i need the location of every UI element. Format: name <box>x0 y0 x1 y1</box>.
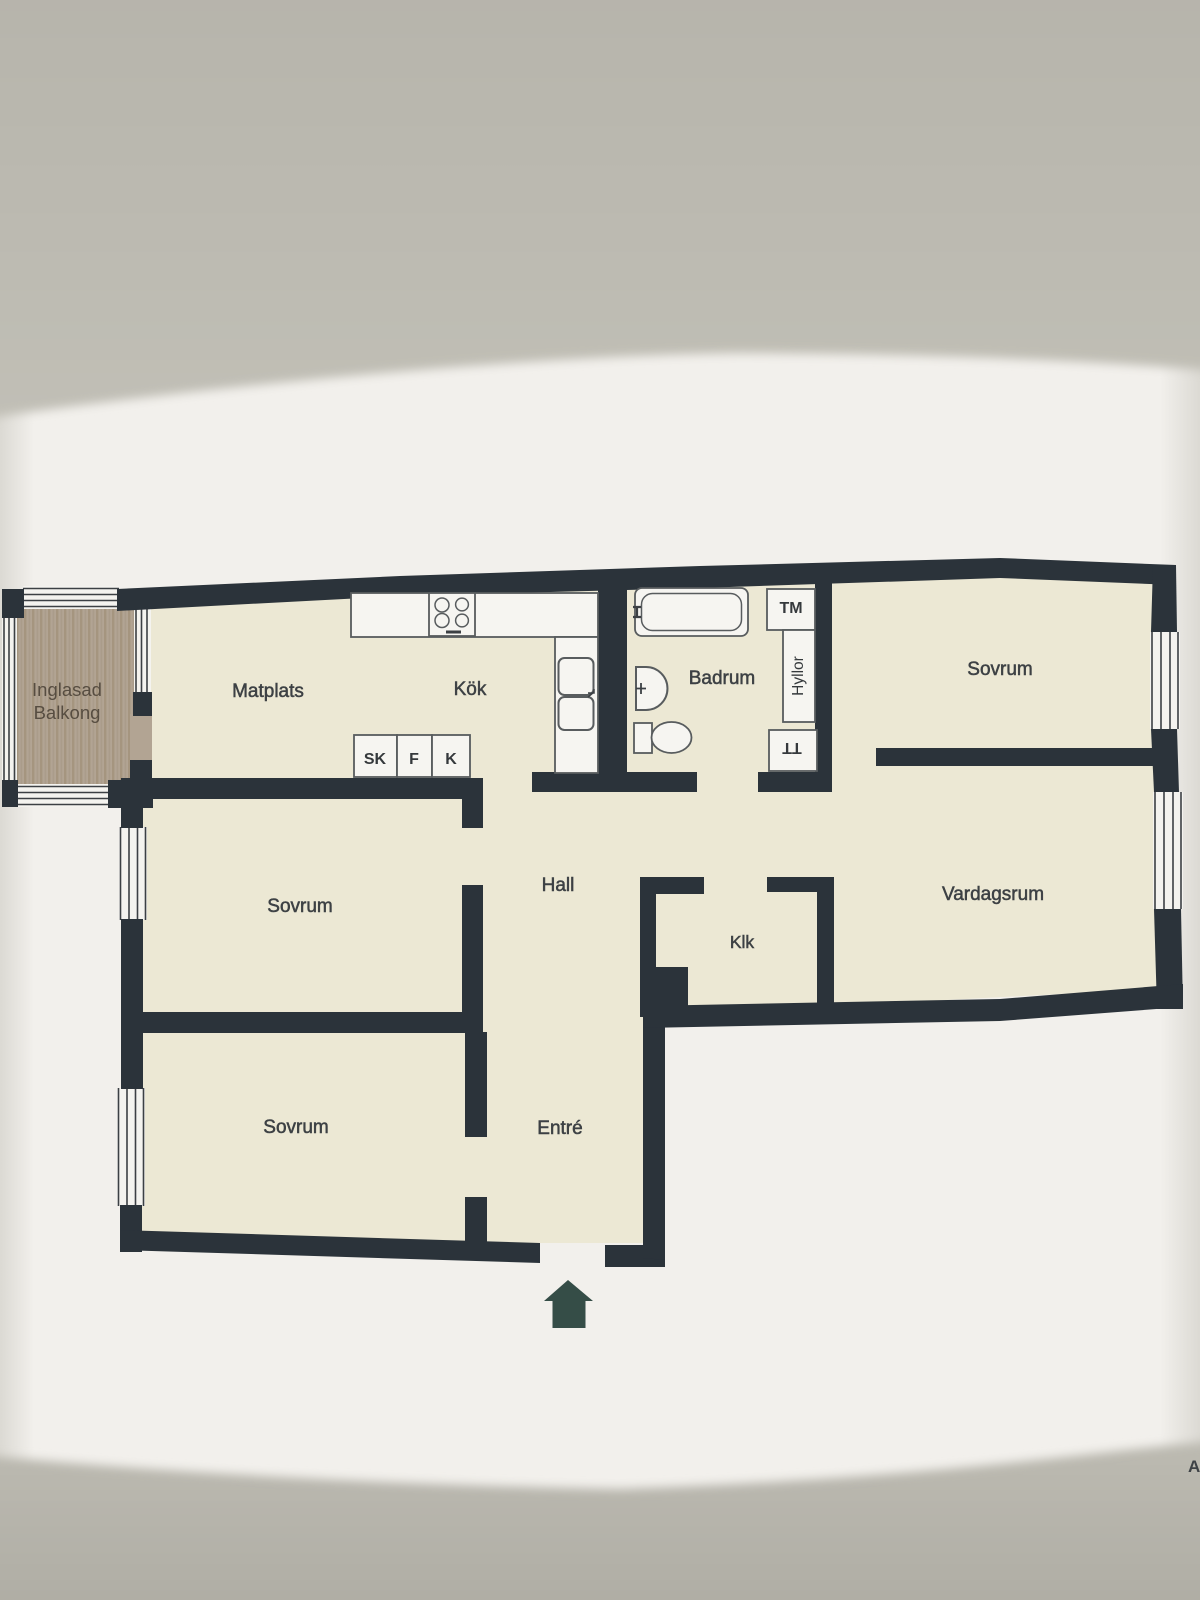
svg-text:SK: SK <box>364 751 387 768</box>
svg-text:Hall: Hall <box>542 875 575 896</box>
svg-text:Entré: Entré <box>537 1118 582 1139</box>
svg-text:Sovrum: Sovrum <box>967 659 1032 680</box>
svg-text:Badrum: Badrum <box>689 668 756 689</box>
svg-text:Kök: Kök <box>454 679 487 700</box>
svg-text:TM: TM <box>779 600 802 617</box>
svg-text:Matplats: Matplats <box>232 681 304 702</box>
svg-text:A: A <box>1188 1457 1200 1476</box>
svg-text:Hyllor: Hyllor <box>790 656 807 696</box>
svg-text:Vardagsrum: Vardagsrum <box>942 884 1044 905</box>
svg-text:F: F <box>409 751 419 768</box>
svg-text:Sovrum: Sovrum <box>267 896 332 917</box>
svg-text:K: K <box>445 751 457 768</box>
svg-text:Sovrum: Sovrum <box>263 1117 328 1138</box>
svg-text:Klk: Klk <box>730 932 755 952</box>
svg-text:Inglasad: Inglasad <box>32 679 102 700</box>
svg-text:TT: TT <box>782 739 802 756</box>
svg-text:Balkong: Balkong <box>34 702 101 723</box>
